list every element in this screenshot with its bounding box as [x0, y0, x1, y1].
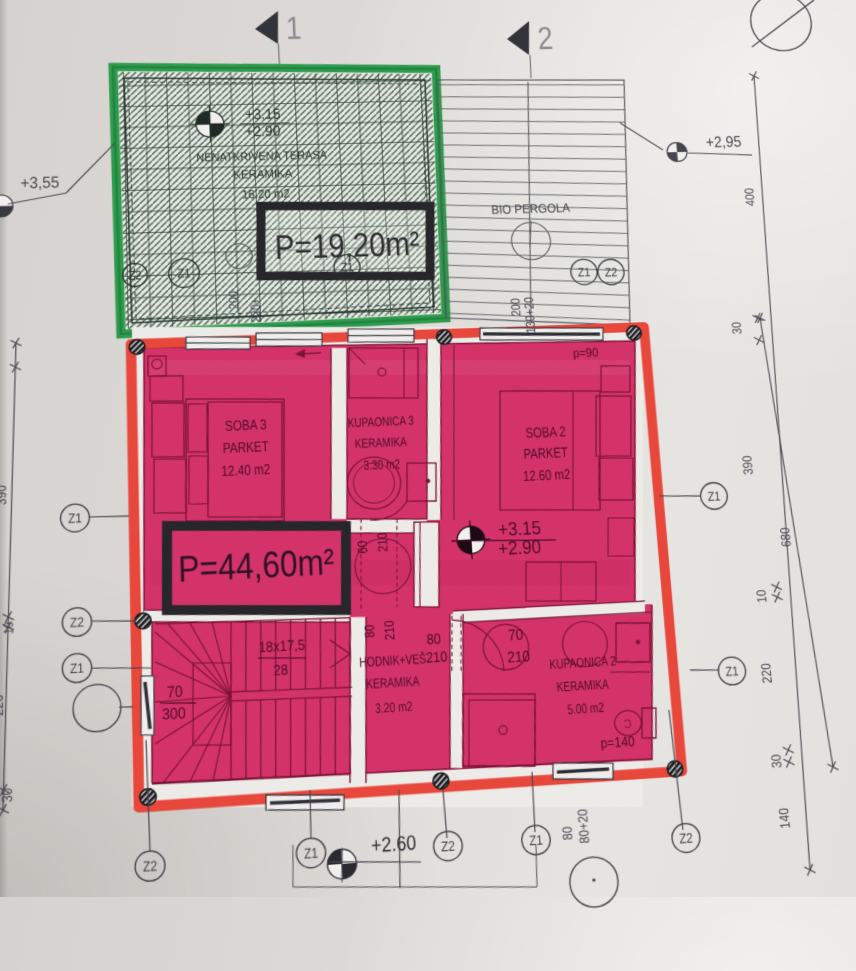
svg-text:210: 210 [381, 620, 398, 641]
svg-text:KERAMIKA: KERAMIKA [556, 677, 610, 695]
svg-text:KUPAONICA 3: KUPAONICA 3 [347, 414, 414, 431]
svg-text:SOBA 2: SOBA 2 [525, 424, 566, 442]
svg-text:Z1: Z1 [529, 834, 543, 850]
svg-text:28: 28 [273, 662, 288, 679]
svg-text:Z2: Z2 [128, 270, 142, 283]
svg-text:130+20: 130+20 [521, 296, 539, 333]
svg-text:Z1: Z1 [177, 268, 191, 281]
svg-text:+3.15: +3.15 [245, 106, 281, 123]
svg-text:+2.90: +2.90 [498, 536, 542, 559]
svg-text:220: 220 [0, 694, 7, 716]
svg-text:2: 2 [536, 20, 554, 56]
svg-text:16.20 m2: 16.20 m2 [242, 187, 290, 202]
svg-text:PARKET: PARKET [223, 438, 270, 456]
svg-text:3.30 m2: 3.30 m2 [363, 458, 400, 474]
svg-text:Z2: Z2 [604, 267, 617, 280]
svg-text:12.40 m2: 12.40 m2 [221, 461, 271, 480]
svg-text:Z2: Z2 [70, 616, 84, 631]
svg-text:390: 390 [739, 455, 756, 475]
svg-text:80+20: 80+20 [574, 808, 592, 844]
svg-text:P=19,20m²: P=19,20m² [274, 225, 420, 267]
svg-text:220: 220 [758, 663, 775, 684]
svg-text:Z1: Z1 [68, 512, 82, 527]
svg-text:400: 400 [742, 188, 758, 206]
svg-text:220+: 220+ [247, 297, 263, 322]
svg-text:80: 80 [426, 631, 441, 648]
svg-text:KERAMIKA: KERAMIKA [355, 435, 408, 451]
svg-text:300: 300 [162, 704, 186, 723]
svg-text:Z1: Z1 [707, 490, 721, 504]
svg-text:Z1: Z1 [725, 665, 739, 680]
svg-text:680: 680 [777, 527, 794, 547]
svg-text:+2.60: +2.60 [371, 831, 417, 857]
svg-text:Z1: Z1 [340, 262, 353, 275]
svg-text:70: 70 [167, 682, 183, 701]
svg-text:10: 10 [2, 622, 16, 635]
svg-text:Z1: Z1 [70, 662, 84, 677]
svg-text:Z2: Z2 [143, 859, 158, 875]
svg-text:Z2: Z2 [679, 832, 693, 847]
svg-text:12.60 m2: 12.60 m2 [523, 466, 571, 484]
svg-text:PARKET: PARKET [523, 444, 569, 462]
svg-text:200: 200 [225, 290, 241, 309]
svg-text:80: 80 [559, 826, 576, 841]
svg-text:30: 30 [0, 787, 16, 803]
svg-text:p=90: p=90 [573, 346, 600, 361]
svg-text:KERAMIKA: KERAMIKA [366, 674, 421, 692]
svg-text:+2,95: +2,95 [705, 134, 742, 152]
svg-text:p=140: p=140 [600, 733, 636, 751]
svg-text:+3,55: +3,55 [20, 174, 59, 193]
svg-text:Ɔ: Ɔ [623, 717, 632, 731]
svg-text:80: 80 [361, 624, 378, 638]
svg-text:Z2: Z2 [441, 840, 455, 856]
svg-text:390: 390 [0, 485, 10, 506]
svg-text:P=44,60m²: P=44,60m² [178, 541, 335, 591]
svg-text:70: 70 [508, 626, 524, 644]
svg-text:210: 210 [426, 649, 448, 666]
svg-text:Z1: Z1 [577, 267, 590, 280]
svg-text:1: 1 [285, 10, 302, 47]
svg-text:KERAMIKA: KERAMIKA [233, 167, 293, 182]
svg-text:140: 140 [776, 807, 794, 829]
svg-text:60: 60 [354, 540, 370, 554]
svg-text:30: 30 [729, 322, 745, 335]
svg-text:BIO PERGOLA: BIO PERGOLA [491, 201, 571, 217]
svg-text:10: 10 [753, 589, 769, 603]
svg-text:30: 30 [768, 754, 785, 769]
svg-text:18x17,5: 18x17,5 [258, 637, 305, 656]
svg-text:210: 210 [507, 648, 531, 666]
svg-text:3.20 m2: 3.20 m2 [375, 700, 413, 717]
svg-text:5.00 m2: 5.00 m2 [567, 701, 605, 718]
svg-text:+2.90: +2.90 [245, 123, 281, 140]
svg-text:210: 210 [374, 532, 391, 552]
svg-text:Z1: Z1 [304, 847, 318, 863]
svg-text:SOBA 3: SOBA 3 [225, 416, 267, 434]
